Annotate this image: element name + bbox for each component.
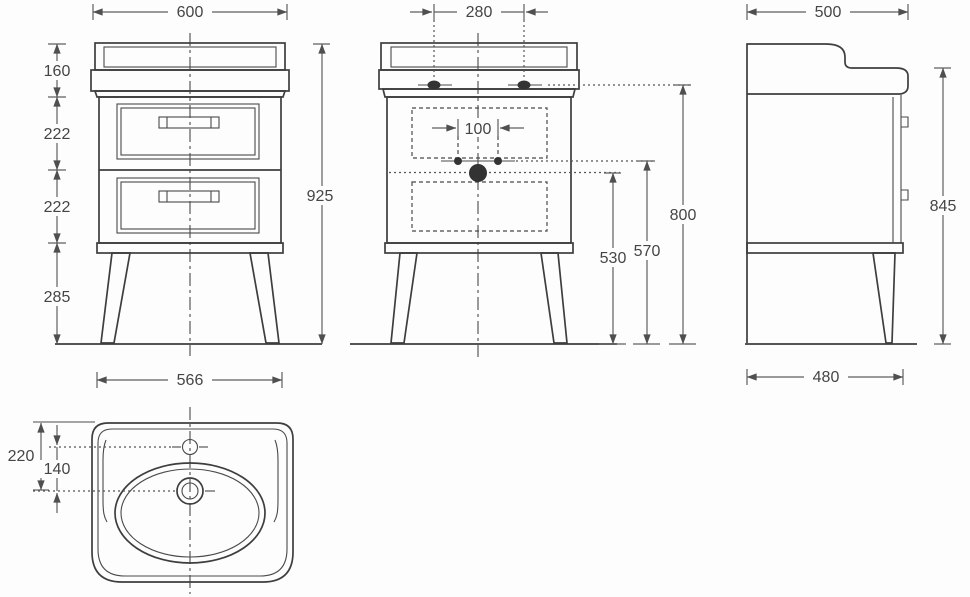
side-profile [747, 44, 908, 343]
handle-profile-upper [901, 117, 908, 127]
basin-rim-right [274, 440, 278, 522]
basin-rim-left [103, 440, 107, 522]
dim-label-seg-drawer-upper: 222 [44, 126, 71, 143]
dim-tap-span: 100 [432, 119, 524, 138]
dim-front-width: 600 [93, 3, 287, 21]
dim-feet-depth: 480 [747, 368, 903, 386]
drawing-svg: 600 925 160 222 222 285 566 [0, 0, 970, 597]
supply-hole-left [454, 157, 462, 165]
dim-label-front-width: 600 [177, 4, 204, 21]
leg-side-front [873, 253, 895, 343]
dim-label-drain-height: 530 [600, 250, 627, 267]
dim-label-tap-span: 100 [465, 121, 492, 138]
supply-hole-right [494, 157, 502, 165]
drain-outlet [469, 164, 487, 182]
dim-label-supply-height: 570 [634, 243, 661, 260]
dim-edge-to-drain: 220 [2, 423, 49, 490]
dim-label-feet-depth: 480 [813, 369, 840, 386]
front-view [55, 33, 322, 356]
basin-top-view [33, 407, 293, 594]
leg-back-left [391, 253, 417, 343]
dim-label-fixing-height: 800 [670, 207, 697, 224]
dim-label-fixing-span: 280 [466, 4, 493, 21]
leg-back-right [541, 253, 567, 343]
drain-hole [177, 478, 215, 504]
dim-side-height: 845 [923, 68, 963, 344]
drawer-handle-upper [159, 117, 219, 128]
handle-profile-lower [901, 190, 908, 200]
dim-label-tap-to-drain: 140 [44, 461, 71, 478]
drawer-lower [117, 178, 259, 233]
drawer-handle-lower [159, 191, 219, 202]
dim-label-feet-width: 566 [177, 372, 204, 389]
dim-label-front-height: 925 [307, 188, 334, 205]
side-view [745, 44, 917, 344]
dim-feet-width: 566 [97, 371, 282, 389]
dim-label-seg-top: 160 [44, 63, 71, 80]
dim-front-segments: 160 222 222 285 [36, 44, 78, 344]
dim-fixing-span: 280 [410, 3, 548, 79]
dim-label-seg-legs: 285 [44, 289, 71, 306]
leg-front-right [250, 253, 279, 343]
dim-label-side-depth: 500 [815, 4, 842, 21]
dim-front-height: 925 [298, 44, 342, 344]
countertop-back [379, 70, 579, 89]
basin-outline-inner [98, 429, 287, 576]
dim-label-side-height: 845 [930, 198, 957, 215]
plinth-back [385, 243, 573, 253]
cutout-lower [412, 182, 547, 231]
plinth-side [747, 243, 903, 253]
leg-front-left [101, 253, 130, 343]
back-view [350, 33, 620, 357]
drawer-upper [117, 104, 259, 159]
dim-side-depth: 500 [747, 3, 908, 21]
vanity-technical-drawing: 600 925 160 222 222 285 566 [0, 0, 970, 597]
dim-label-edge-to-drain: 220 [8, 448, 35, 465]
dim-label-seg-drawer-lower: 222 [44, 199, 71, 216]
